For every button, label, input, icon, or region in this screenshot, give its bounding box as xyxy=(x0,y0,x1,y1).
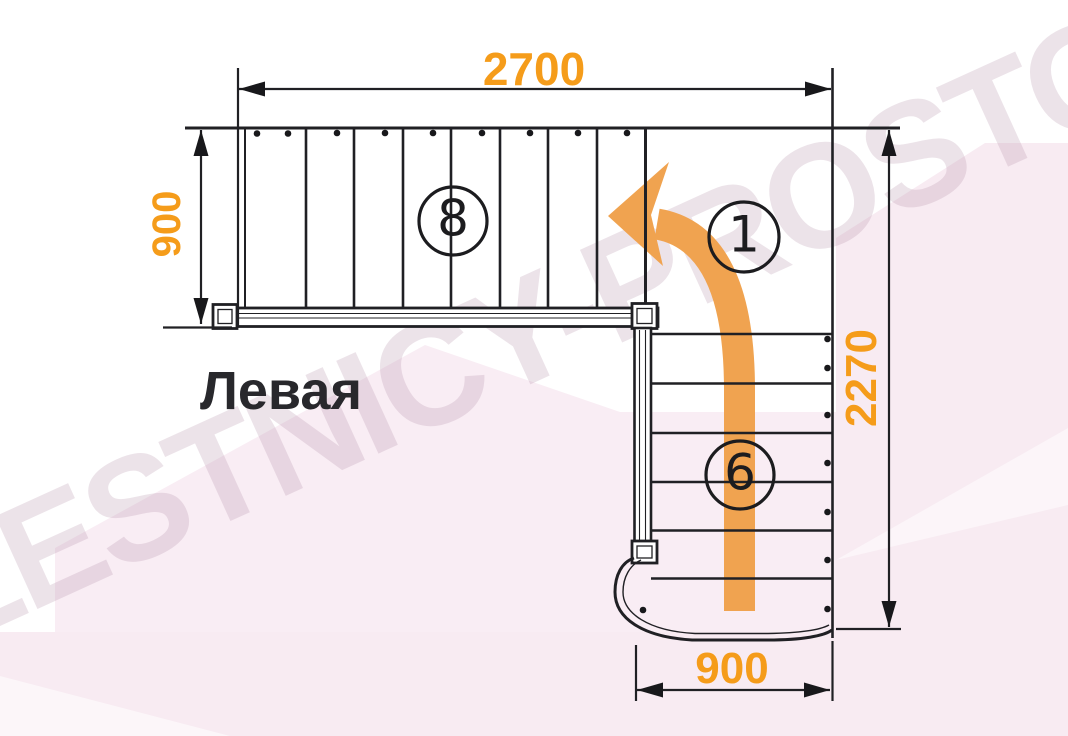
dim-right-height-value: 2270 xyxy=(837,303,885,453)
bullnose-step xyxy=(615,558,832,640)
stair-plan-canvas: LESTNICY-PROSTO.RU xyxy=(0,0,1068,736)
dimension-top-width xyxy=(238,68,831,326)
upper-flight xyxy=(185,128,900,308)
upper-flight-step-count: 8 xyxy=(437,190,469,248)
stair-plan-linework xyxy=(0,0,1068,736)
arrowhead-down xyxy=(194,298,209,324)
plan-title-label: Левая xyxy=(200,360,362,422)
dim-upper-flight-depth-value: 900 xyxy=(145,164,189,284)
arrowhead-up xyxy=(882,130,897,156)
arrowhead-up xyxy=(194,130,209,156)
turn-landing-count: 1 xyxy=(728,206,760,264)
walk-direction-arrow xyxy=(608,162,740,611)
newel-post-bottom xyxy=(632,541,657,563)
arrowhead-down xyxy=(882,601,897,627)
dim-top-width-value: 2700 xyxy=(434,42,634,96)
lower-flight-stringer xyxy=(632,328,657,563)
newel-post-corner xyxy=(632,304,657,329)
newel-post-left xyxy=(213,305,237,329)
arrowhead-right xyxy=(805,82,831,97)
arrowhead-left xyxy=(239,82,265,97)
dim-bottom-width-value: 900 xyxy=(652,644,812,694)
lower-flight-step-count: 6 xyxy=(724,444,756,502)
upper-flight-baluster-dots xyxy=(254,130,631,137)
upper-flight-handrail xyxy=(234,308,658,327)
